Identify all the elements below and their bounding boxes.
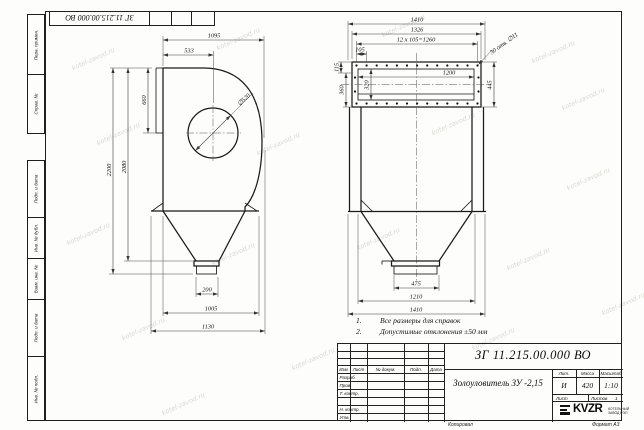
tb-line (404, 344, 405, 422)
dim-1130: 1130 (202, 324, 215, 331)
tb-doc-number: ЗГ 11.215.00.000 ВО (444, 348, 622, 363)
tb-row-tkontr: Т. контр. (340, 391, 359, 396)
note-number: 2. (356, 327, 380, 338)
dim-1200: 1200 (443, 70, 456, 77)
tb-line (338, 358, 444, 359)
dim-2200: 2200 (106, 163, 113, 176)
dim-445: 445 (487, 80, 494, 89)
copied-label: Копировал (448, 422, 473, 428)
drawing-sheet: kotel-zavod.ru kotel-zavod.ru kotel-zavo… (0, 0, 644, 430)
dim-660: 660 (141, 94, 148, 104)
dim-475: 475 (411, 281, 420, 288)
tb-line (367, 344, 368, 422)
tb-header-data: Дата (428, 367, 444, 372)
tb-sheet-label: Лист (556, 396, 568, 401)
kvzr-logo-text: KVZR (573, 403, 602, 415)
note-item: 2. Допустимые отклонения ±50 мм (356, 327, 487, 338)
tb-product-name: Золоуловитель ЗУ -2,15 (445, 378, 551, 388)
tb-header-podp: Подп. (404, 367, 428, 372)
tb-header-izm: Изм. (338, 367, 350, 372)
drawing-notes: 1. Все размеры для справок 2. Допустимые… (356, 316, 487, 337)
dim-bolt-pattern: 12 х 105=1260 (397, 37, 436, 44)
tb-line (338, 381, 444, 382)
title-block: Изм. Лист № докум. Подп. Дата Разраб. Пр… (337, 343, 622, 421)
dim-inlet-diameter: ∅520 (236, 92, 252, 108)
tb-row-prov: Пров. (340, 383, 352, 388)
dim-1005: 1005 (205, 306, 218, 313)
tb-row-utv: Утв. (340, 415, 350, 420)
tb-header-list: Лист (350, 367, 367, 372)
note-number: 1. (356, 316, 380, 327)
dim-200: 200 (202, 287, 212, 294)
tb-line (428, 344, 429, 422)
tb-row-razrab: Разраб. (340, 375, 356, 380)
side-view-dimensions: 1095 533 660 2200 2080 ∅520 200 1005 113… (106, 33, 265, 335)
dim-115: 115 (334, 63, 341, 72)
dim-533: 533 (184, 48, 193, 55)
kvzr-caption-line2: ЗАВОД РЭП (608, 411, 629, 415)
tb-lit-header: Лит. (552, 371, 576, 376)
dim-1210: 1210 (410, 294, 423, 301)
tb-sheets-label: Листов (591, 396, 607, 401)
tb-row-nkontr: Н. контр. (340, 407, 360, 412)
tb-line (338, 413, 444, 414)
holes-note: 30 отв. ∅11 (488, 31, 519, 57)
tb-line (338, 351, 444, 352)
dim-1410-top: 1410 (411, 17, 424, 24)
tb-line (338, 397, 444, 398)
format-label: Формат А3 (592, 422, 619, 428)
note-text: Все размеры для справок (380, 316, 461, 327)
kvzr-logo-icon (560, 405, 570, 416)
tb-line (552, 377, 623, 378)
tb-sheets-value: 1 (615, 396, 618, 401)
dim-1410-bottom: 1410 (410, 307, 423, 314)
dim-1095: 1095 (208, 33, 221, 40)
note-text: Допустимые отклонения ±50 мм (380, 327, 487, 338)
tb-line (588, 394, 589, 401)
note-item: 1. Все размеры для справок (356, 316, 487, 327)
tb-line (552, 401, 623, 402)
dim-320: 320 (364, 79, 371, 90)
kvzr-logo-caption: КОТЕЛЬНЫЙ ЗАВОД РЭП (608, 407, 629, 415)
tb-header-dokum: № докум. (367, 367, 404, 372)
tb-mass-header: Масса (576, 371, 599, 376)
dim-2080: 2080 (121, 160, 128, 173)
tb-lit-value: И (552, 381, 576, 390)
dim-1326: 1326 (411, 27, 424, 34)
dim-360: 360 (339, 84, 346, 95)
tb-scale-value: 1:10 (599, 381, 623, 390)
dim-105: 105 (355, 47, 364, 54)
tb-scale-header: Масштаб (599, 371, 623, 376)
tb-mass-value: 420 (576, 381, 599, 390)
